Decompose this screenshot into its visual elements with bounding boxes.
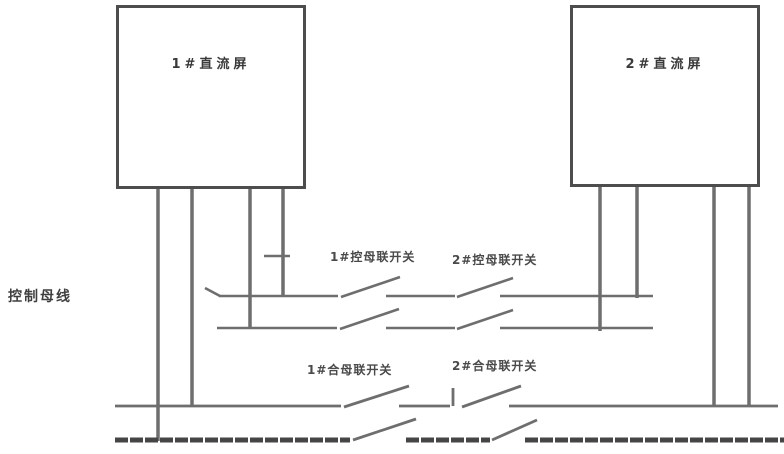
switch-blade-closing-2 bbox=[462, 386, 521, 407]
panel1-drop-lines bbox=[158, 189, 283, 441]
control-tie-switch-1-label: 1#控母联开关 bbox=[330, 248, 415, 265]
switch-blade-closing-4 bbox=[492, 420, 537, 440]
closing-tie-switch-1-label: 1#合母联开关 bbox=[307, 361, 392, 378]
dc-panel-2-label: 2#直流屏 bbox=[626, 53, 705, 72]
dc-panel-1-box: 1#直流屏 bbox=[116, 5, 306, 189]
control-bus-lower-line bbox=[217, 309, 653, 329]
switch-blade-control-2 bbox=[457, 278, 513, 297]
control-bus-upper-line bbox=[205, 277, 653, 297]
switch-blade-closing-1 bbox=[344, 386, 409, 407]
control-bus-label: 控制母线 bbox=[8, 286, 72, 306]
switch-blade-control-1 bbox=[341, 277, 400, 297]
switch-blade-control-4 bbox=[457, 310, 513, 329]
dc-panel-1-label: 1#直流屏 bbox=[172, 53, 251, 72]
control-tie-switch-2-label: 2#控母联开关 bbox=[452, 251, 537, 268]
diagram-canvas: 1#直流屏 2#直流屏 控制母线 1#控母联开关 2#控母联开关 1#合母联开关… bbox=[0, 0, 784, 454]
dc-panel-2-box: 2#直流屏 bbox=[570, 5, 760, 187]
closing-bus-upper-line bbox=[115, 386, 778, 407]
switch-blade-control-3 bbox=[340, 309, 399, 329]
switch-blade-closing-3 bbox=[353, 419, 416, 440]
closing-tie-switch-2-label: 2#合母联开关 bbox=[452, 357, 537, 374]
closing-bus-lower-blades bbox=[353, 419, 537, 440]
control-line-left-tail bbox=[205, 288, 220, 296]
